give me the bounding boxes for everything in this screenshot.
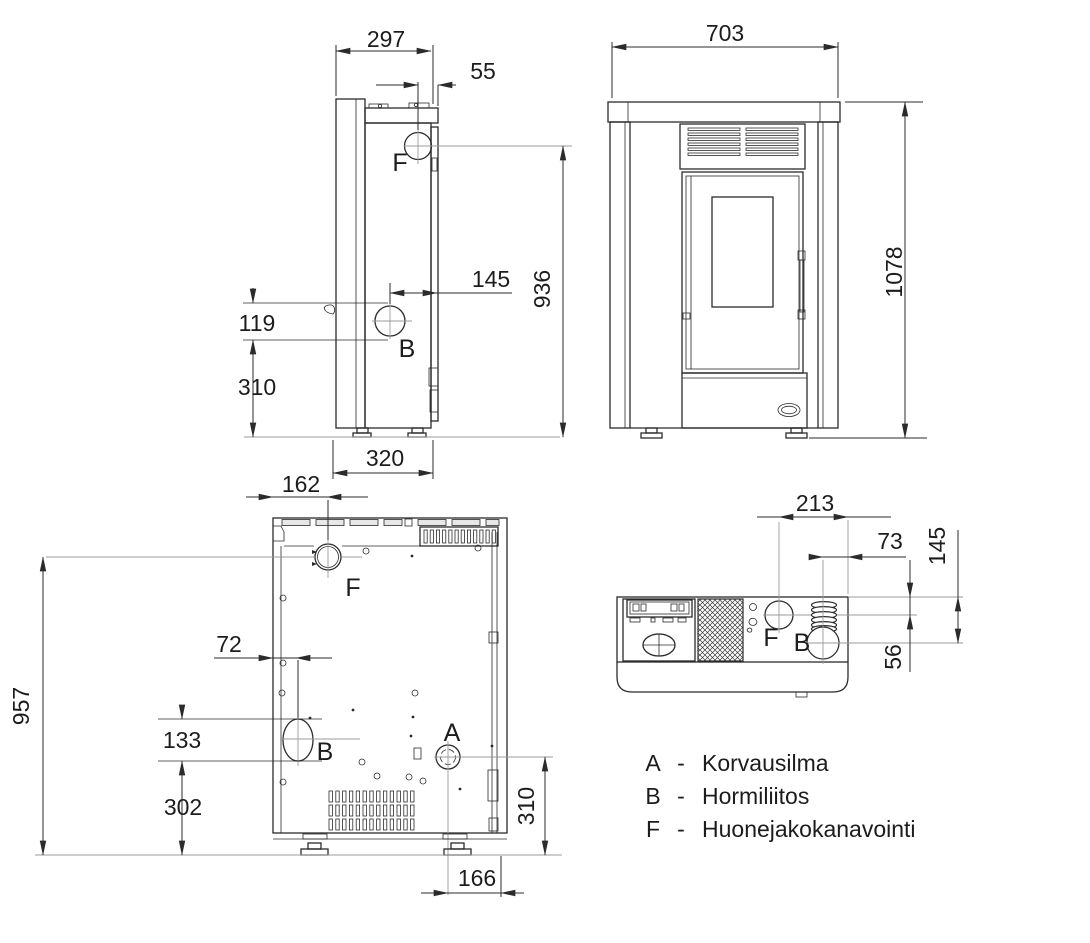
side-depth-top-dim: 297	[367, 26, 405, 52]
side-b-span-dim: 119	[239, 310, 276, 336]
back-f-offset-dim: 162	[282, 471, 320, 497]
stove-dimension-drawing: 297 55 145 936 119 310 320 F B	[0, 0, 1090, 938]
drawing-canvas: 297 55 145 936 119 310 320 F B	[0, 0, 1090, 938]
back-b-span-dim: 133	[163, 727, 201, 753]
back-a-label: A	[444, 719, 461, 747]
back-a-height-dim: 310	[513, 787, 539, 825]
back-a-offset-dim: 166	[458, 865, 496, 891]
front-height-dim: 1078	[881, 246, 907, 297]
back-b-height-dim: 302	[164, 794, 202, 820]
top-f-offset-dim: 213	[796, 490, 834, 516]
legend-key-f: F	[646, 816, 660, 842]
top-f-label: F	[763, 624, 778, 652]
side-depth-bottom-dim: 320	[366, 445, 404, 471]
legend-label-b: Hormiliitos	[702, 783, 809, 809]
side-f-label: F	[392, 149, 407, 177]
top-f-depth-dim: 56	[880, 644, 906, 670]
side-b-label: B	[399, 335, 416, 363]
back-b-offset-dim: 72	[216, 631, 242, 657]
side-b-height-dim: 310	[238, 374, 276, 400]
legend-key-b: B	[645, 783, 660, 809]
back-f-height-dim: 957	[8, 687, 34, 725]
side-f-offset-dim: 55	[470, 58, 496, 84]
back-f-label: F	[345, 574, 360, 602]
top-b-depth-dim: 145	[924, 527, 950, 565]
legend-label-f: Huonejakokanavointi	[702, 816, 916, 842]
legend-dash: -	[677, 750, 685, 776]
front-width-dim: 703	[706, 20, 744, 46]
top-b-label: B	[794, 629, 811, 657]
top-hopper-hatch	[698, 599, 743, 661]
legend-key-a: A	[645, 750, 661, 776]
legend-dash: -	[677, 783, 685, 809]
back-b-label: B	[317, 738, 334, 766]
legend-label-a: Korvausilma	[702, 750, 829, 776]
side-f-height-dim: 936	[529, 270, 555, 308]
legend-dash: -	[677, 816, 685, 842]
top-b-offset-dim: 73	[877, 528, 903, 554]
side-b-offset-dim: 145	[472, 266, 510, 292]
